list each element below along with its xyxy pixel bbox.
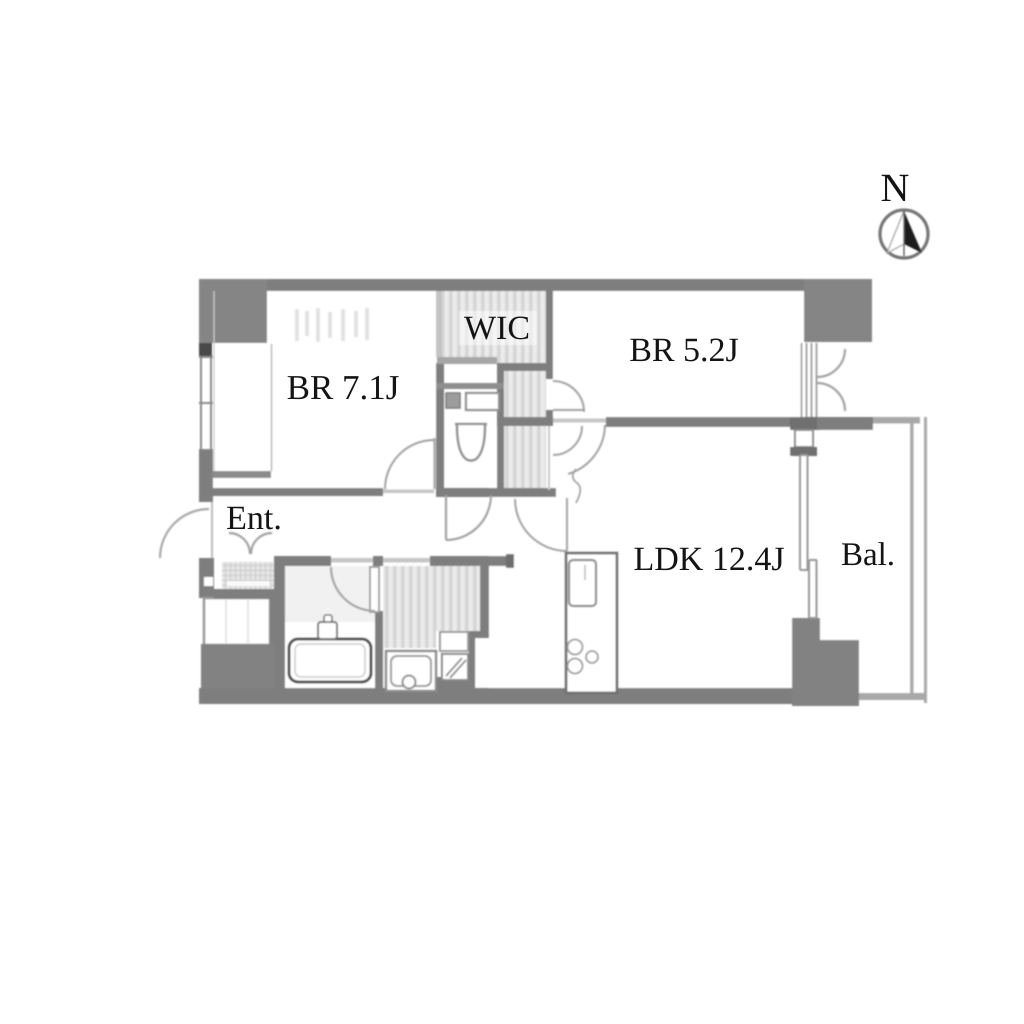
svg-text:WIC: WIC	[464, 310, 530, 347]
svg-text:Ent.: Ent.	[226, 500, 282, 537]
svg-text:BR 7.1J: BR 7.1J	[287, 368, 400, 407]
svg-text:Bal.: Bal.	[841, 537, 895, 573]
svg-text:BR 5.2J: BR 5.2J	[629, 332, 739, 369]
svg-text:N: N	[881, 165, 910, 210]
svg-text:LDK 12.4J: LDK 12.4J	[633, 541, 784, 578]
